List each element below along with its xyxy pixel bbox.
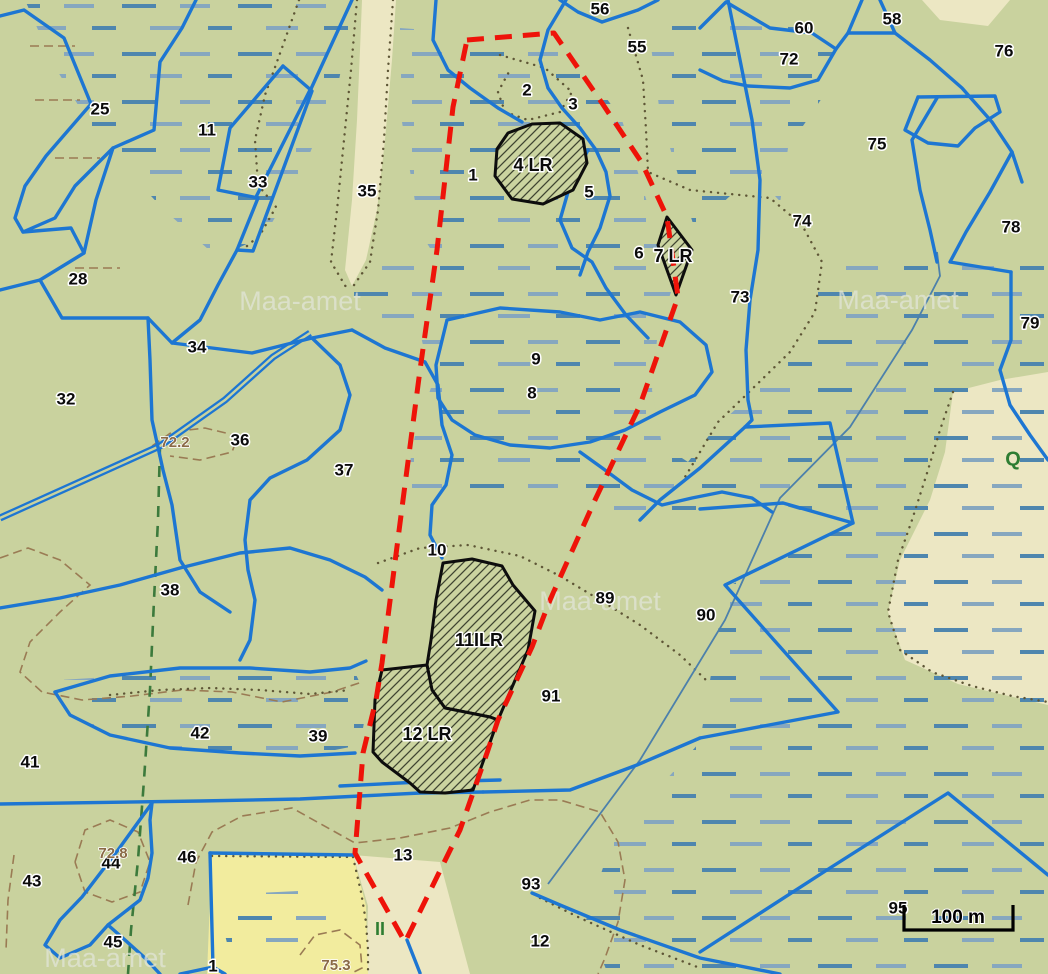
parcel-label-37: 37 <box>335 460 354 479</box>
parcel-label-39: 39 <box>309 726 328 745</box>
parcel-label-73: 73 <box>731 287 750 306</box>
parcel-label-1: 1 <box>468 165 477 184</box>
parcel-label-90: 90 <box>697 605 716 624</box>
parcel-label-8: 8 <box>527 383 536 402</box>
parcel-label-32: 32 <box>57 389 76 408</box>
maa-amet-watermark: Maa-amet <box>837 285 959 315</box>
parcel-label-2: 2 <box>522 80 531 99</box>
stand-label-7-lr: 7 LR <box>653 246 692 266</box>
parcel-boundary-line <box>210 853 353 855</box>
parcel-label-74: 74 <box>793 211 812 230</box>
parcel-label-34: 34 <box>188 337 207 356</box>
vegetation-symbol-ii: II <box>375 919 385 939</box>
parcel-label-9: 9 <box>531 349 540 368</box>
map-viewport[interactable]: Maa-ametMaa-ametMaa-ametMaa-amet4 LR7 LR… <box>0 0 1048 974</box>
parcel-label-1: 1 <box>208 956 217 974</box>
parcel-label-55: 55 <box>628 37 647 56</box>
parcel-label-10: 10 <box>428 540 447 559</box>
elevation-label-75.3: 75.3 <box>321 957 350 974</box>
scale-bar-label: 100 m <box>931 907 985 928</box>
map-canvas[interactable]: Maa-ametMaa-ametMaa-ametMaa-amet4 LR7 LR… <box>0 0 1048 974</box>
parcel-label-46: 46 <box>178 847 197 866</box>
parcel-label-3: 3 <box>568 94 577 113</box>
elevation-label-72.2: 72.2 <box>160 434 189 451</box>
parcel-label-5: 5 <box>584 182 593 201</box>
parcel-label-79: 79 <box>1021 313 1040 332</box>
stand-label-12-lr: 12 LR <box>402 724 451 744</box>
parcel-label-41: 41 <box>21 752 40 771</box>
parcel-label-33: 33 <box>249 172 268 191</box>
stand-label-11ilr: 11ILR <box>455 630 503 650</box>
parcel-label-6: 6 <box>634 243 643 262</box>
parcel-label-11: 11 <box>198 120 216 139</box>
parcel-label-60: 60 <box>795 18 814 37</box>
parcel-label-89: 89 <box>596 588 615 607</box>
parcel-label-35: 35 <box>358 181 377 200</box>
parcel-label-56: 56 <box>591 0 610 18</box>
parcel-label-43: 43 <box>23 871 42 890</box>
parcel-label-25: 25 <box>91 99 110 118</box>
parcel-label-42: 42 <box>191 723 210 742</box>
parcel-label-38: 38 <box>161 580 180 599</box>
vegetation-symbol-q: Q <box>1005 448 1021 470</box>
maa-amet-watermark: Maa-amet <box>239 286 361 316</box>
stand-label-4-lr: 4 LR <box>513 155 552 175</box>
parcel-label-58: 58 <box>883 9 902 28</box>
parcel-label-93: 93 <box>522 874 541 893</box>
parcel-label-91: 91 <box>542 686 561 705</box>
parcel-label-76: 76 <box>995 41 1014 60</box>
parcel-label-12: 12 <box>531 931 550 950</box>
parcel-label-36: 36 <box>231 430 250 449</box>
parcel-label-13: 13 <box>394 845 413 864</box>
parcel-label-75: 75 <box>868 134 887 153</box>
parcel-label-72: 72 <box>780 49 799 68</box>
parcel-label-78: 78 <box>1002 217 1021 236</box>
elevation-label-72.8: 72.8 <box>98 845 127 862</box>
parcel-label-28: 28 <box>69 269 88 288</box>
parcel-label-45: 45 <box>104 932 123 951</box>
